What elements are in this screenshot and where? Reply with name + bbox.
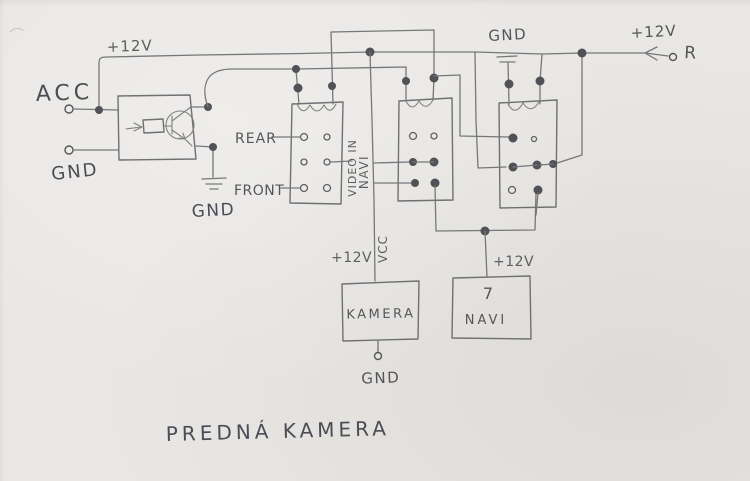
wire-navi-supply <box>485 231 487 277</box>
wire-line-b <box>232 67 406 81</box>
junction-dot <box>430 74 439 83</box>
resistor-symbol <box>143 119 164 133</box>
junction-dot <box>328 82 336 90</box>
junction-dot <box>536 77 545 86</box>
kamera-box-label: KAMERA <box>346 306 415 322</box>
rear-label: REAR <box>235 131 277 147</box>
navi-module: 7 NAVI <box>452 276 531 339</box>
relay-contact <box>410 133 417 140</box>
relay-3-coil <box>508 102 539 110</box>
wire-tap-row2 <box>374 162 409 163</box>
acc-terminal <box>65 105 73 113</box>
reverse-input: +12V R <box>578 22 697 64</box>
ground-symbol <box>497 56 517 62</box>
acc-label: ACC <box>35 80 93 107</box>
relay-2-box <box>398 98 453 201</box>
relay-contact <box>301 159 307 165</box>
relay-2 <box>398 74 509 202</box>
navi-pin-label: 7 <box>483 284 493 303</box>
video-in-label-2: NAVI <box>357 155 371 189</box>
junction-dot <box>292 65 300 73</box>
wire-row2-right-feed <box>554 53 582 164</box>
junction-dot <box>505 80 514 89</box>
module-ground: GND <box>191 143 235 222</box>
relay-contact <box>431 133 437 139</box>
front-label: FRONT <box>234 183 284 199</box>
relay-contact <box>324 134 330 140</box>
wire-emitter-gnd <box>196 146 213 177</box>
navi-12v-label: +12V <box>493 254 534 270</box>
ground-symbol <box>202 178 226 189</box>
wire-collector-riser <box>205 69 232 107</box>
relay-1-coil <box>297 104 336 111</box>
junction-dot <box>95 106 103 114</box>
relay-contact <box>301 185 308 192</box>
relay-contact <box>532 137 537 142</box>
vcc-label: VCC <box>376 235 390 263</box>
acc-input: ACC <box>35 80 118 114</box>
module-gnd-label: GND <box>191 200 235 222</box>
gnd-input-label: GND <box>50 159 99 185</box>
reverse-12v-label: +12V <box>630 22 677 42</box>
relay-contact <box>324 159 330 165</box>
relay-contact <box>301 134 308 141</box>
junction-dot <box>294 84 303 93</box>
relay-1-box <box>290 102 343 204</box>
kamera-module: KAMERA GND <box>342 281 419 388</box>
relay3-gnd-label: GND <box>488 25 528 45</box>
rail-12v: +12V <box>99 36 668 110</box>
wire-to-relay3-row1 <box>434 75 509 137</box>
navi-box-label: NAVI <box>465 313 508 328</box>
wire-row3-bus <box>435 186 536 231</box>
kamera-12v-label: +12V <box>331 250 372 266</box>
transistor-module <box>118 95 196 160</box>
reverse-terminal <box>670 54 677 61</box>
relay-contact-closed <box>411 179 419 187</box>
scanned-schematic-page: +12V ACC GND <box>0 0 750 481</box>
wire-12v-rail <box>99 52 668 110</box>
wire-row2-left-feed <box>475 52 506 168</box>
paper-scratch <box>10 28 23 32</box>
gnd-input: GND <box>50 146 118 185</box>
kamera-gnd-label: GND <box>361 368 401 387</box>
relay-1: REAR FRONT VIDEO IN NAVI <box>234 30 434 204</box>
relay-contact <box>509 187 516 194</box>
reverse-label: R <box>684 43 697 64</box>
relay-contact-closed <box>509 134 518 143</box>
junction-dot <box>578 49 587 58</box>
kamera-gnd-terminal <box>375 353 382 360</box>
page-title: PREDNÁ KAMERA <box>166 416 391 446</box>
transistor-module-box <box>118 95 196 160</box>
junction-dot <box>209 143 217 151</box>
relay-3-box <box>499 100 557 208</box>
gnd-terminal <box>65 146 73 154</box>
relay-contact <box>324 185 331 192</box>
junction-dot <box>402 77 410 85</box>
schematic-drawing: +12V ACC GND <box>0 0 750 481</box>
rail-12v-label: +12V <box>107 36 154 56</box>
